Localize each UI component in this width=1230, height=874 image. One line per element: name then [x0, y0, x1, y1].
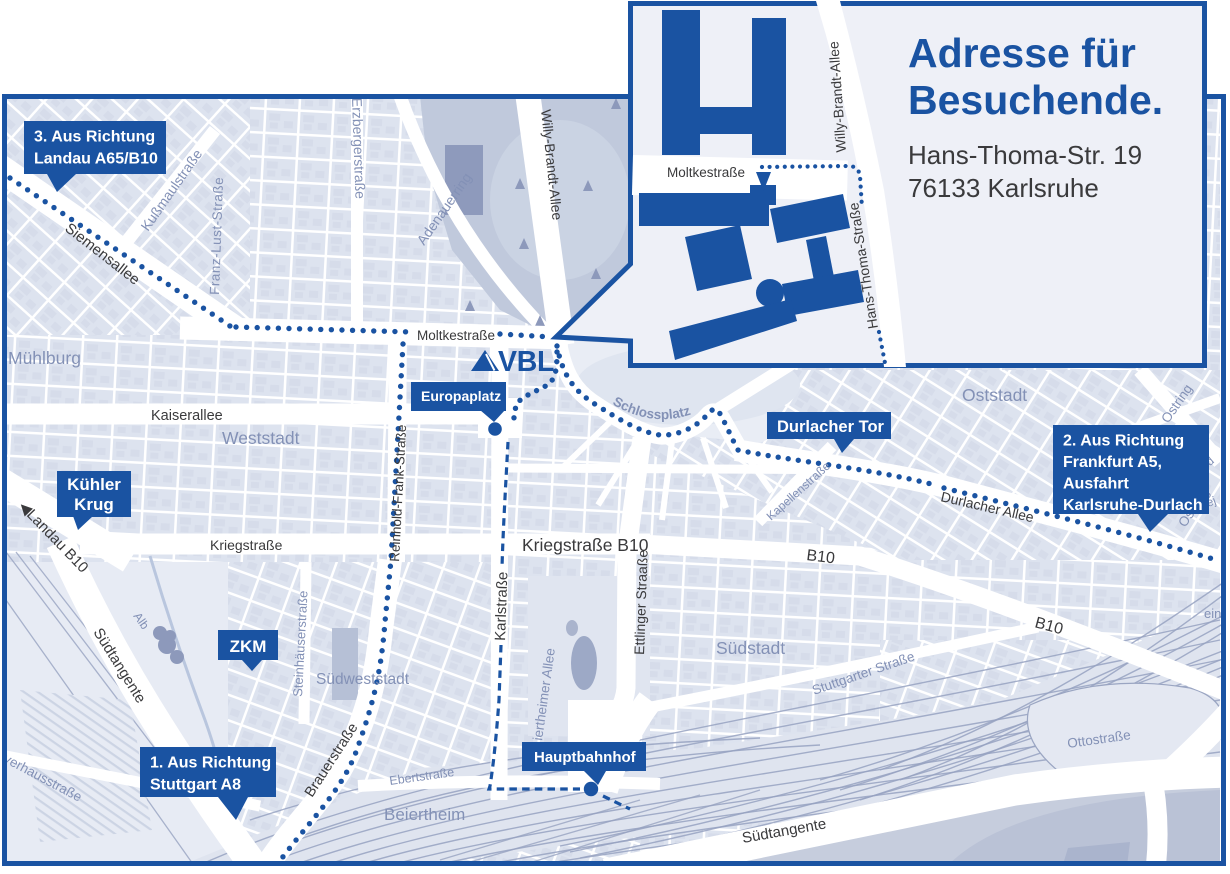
svg-text:Karlsruhe-Durlach: Karlsruhe-Durlach [1063, 497, 1203, 514]
svg-text:Durlacher Tor: Durlacher Tor [777, 418, 885, 436]
svg-text:Kaiserallee: Kaiserallee [151, 408, 223, 424]
svg-text:Adresse für: Adresse für [908, 30, 1136, 76]
svg-text:Besuchende.: Besuchende. [908, 77, 1163, 123]
svg-text:76133 Karlsruhe: 76133 Karlsruhe [908, 173, 1099, 203]
svg-text:Mühlburg: Mühlburg [8, 348, 81, 368]
svg-text:Stuttgart A8: Stuttgart A8 [150, 777, 241, 794]
svg-text:ZKM: ZKM [230, 637, 267, 656]
svg-text:Ausfahrt: Ausfahrt [1063, 476, 1129, 493]
svg-text:ein: ein [1204, 606, 1221, 621]
svg-text:Frankfurt A5,: Frankfurt A5, [1063, 454, 1162, 471]
svg-text:Südweststadt: Südweststadt [316, 671, 410, 688]
svg-text:Hans-Thoma-Str. 19: Hans-Thoma-Str. 19 [908, 140, 1142, 170]
svg-text:Südstadt: Südstadt [716, 638, 785, 658]
svg-text:Moltkestraße: Moltkestraße [667, 165, 745, 180]
svg-text:VBL: VBL [498, 346, 554, 378]
svg-text:3. Aus Richtung: 3. Aus Richtung [34, 129, 155, 146]
svg-text:Krug: Krug [74, 495, 114, 514]
svg-text:Landau A65/B10: Landau A65/B10 [34, 151, 158, 168]
svg-text:Kriegstraße: Kriegstraße [210, 537, 283, 553]
svg-text:B10: B10 [806, 547, 836, 567]
svg-text:Hauptbahnhof: Hauptbahnhof [534, 749, 637, 766]
svg-text:Oststadt: Oststadt [962, 385, 1027, 405]
svg-text:Beiertheim: Beiertheim [384, 805, 465, 824]
svg-text:Europaplatz: Europaplatz [421, 388, 501, 404]
svg-text:Kriegstraße B10: Kriegstraße B10 [522, 535, 649, 555]
svg-text:Karlstraße: Karlstraße [492, 571, 511, 641]
svg-text:2. Aus Richtung: 2. Aus Richtung [1063, 433, 1184, 450]
svg-text:Moltkestraße: Moltkestraße [417, 328, 495, 343]
svg-text:1. Aus Richtung: 1. Aus Richtung [150, 755, 271, 772]
svg-text:Kühler: Kühler [67, 475, 121, 494]
svg-text:Weststadt: Weststadt [222, 428, 300, 448]
